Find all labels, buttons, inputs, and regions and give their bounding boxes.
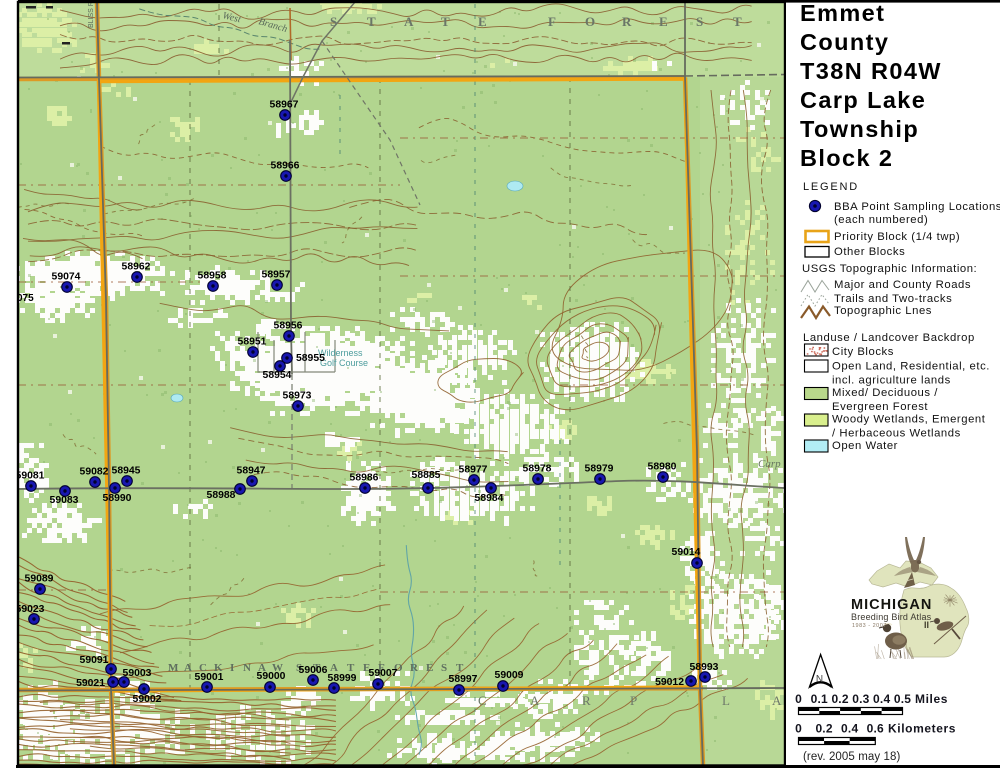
svg-text:BBA Point Sampling Locations: BBA Point Sampling Locations xyxy=(834,201,1000,213)
svg-text:N: N xyxy=(243,662,251,674)
svg-text:/ Herbaceous Wetlands: / Herbaceous Wetlands xyxy=(832,428,961,440)
svg-text:R: R xyxy=(622,14,632,29)
svg-text:A: A xyxy=(772,693,782,708)
svg-text:Open Water: Open Water xyxy=(832,440,898,452)
svg-text:59021: 59021 xyxy=(76,678,105,689)
svg-text:Township: Township xyxy=(800,116,919,142)
svg-text:A: A xyxy=(530,693,540,708)
svg-text:Carp Lake: Carp Lake xyxy=(800,87,926,113)
svg-text:T: T xyxy=(456,662,464,674)
svg-text:58984: 58984 xyxy=(475,493,504,504)
svg-text:58997: 58997 xyxy=(449,674,478,685)
svg-text:R: R xyxy=(410,662,419,674)
svg-text:59012: 59012 xyxy=(655,677,684,688)
svg-text:59003: 59003 xyxy=(123,668,152,679)
svg-text:0.1: 0.1 xyxy=(811,692,828,706)
svg-text:BLISS RD: BLISS RD xyxy=(88,0,95,28)
svg-text:58885: 58885 xyxy=(412,470,441,481)
svg-text:58951: 58951 xyxy=(238,337,267,348)
svg-text:N: N xyxy=(816,674,823,685)
svg-text:T: T xyxy=(441,14,450,29)
svg-text:E: E xyxy=(478,14,487,29)
svg-text:T: T xyxy=(733,14,742,29)
svg-text:P: P xyxy=(630,693,637,708)
svg-text:58977: 58977 xyxy=(459,465,488,476)
svg-text:E: E xyxy=(659,14,668,29)
svg-text:M: M xyxy=(168,662,179,674)
svg-text:II: II xyxy=(924,620,929,630)
svg-text:58956: 58956 xyxy=(274,321,303,332)
svg-text:59023: 59023 xyxy=(16,604,45,615)
svg-text:Emmet: Emmet xyxy=(800,0,885,26)
svg-text:0.2: 0.2 xyxy=(815,722,832,736)
svg-text:I: I xyxy=(230,662,234,674)
svg-text:MICHIGAN: MICHIGAN xyxy=(851,597,932,613)
svg-text:59007: 59007 xyxy=(369,668,398,679)
svg-text:Topographic Lnes: Topographic Lnes xyxy=(834,305,932,317)
svg-text:58947: 58947 xyxy=(237,466,266,477)
svg-text:USGS Topographic Information:: USGS Topographic Information: xyxy=(802,263,977,275)
svg-text:58945: 58945 xyxy=(112,466,141,477)
svg-text:0.2: 0.2 xyxy=(831,692,848,706)
svg-text:0.6: 0.6 xyxy=(867,722,884,736)
svg-text:59081: 59081 xyxy=(16,471,45,482)
svg-text:59074: 59074 xyxy=(52,272,81,283)
svg-text:L: L xyxy=(722,693,730,708)
svg-text:59089: 59089 xyxy=(25,574,54,585)
svg-text:58955: 58955 xyxy=(296,353,325,364)
svg-text:Priority Block (1/4 twp): Priority Block (1/4 twp) xyxy=(834,231,960,243)
svg-text:Open Land, Residential, etc.: Open Land, Residential, etc. xyxy=(832,361,990,373)
svg-text:58980: 58980 xyxy=(648,462,677,473)
svg-text:59006: 59006 xyxy=(299,665,328,676)
svg-text:City Blocks: City Blocks xyxy=(832,346,894,358)
svg-text:Block 2: Block 2 xyxy=(800,145,893,171)
svg-text:0.4: 0.4 xyxy=(841,722,858,736)
svg-text:58954: 58954 xyxy=(263,370,292,381)
svg-text:Golf Course: Golf Course xyxy=(320,358,368,368)
svg-text:58999: 58999 xyxy=(328,673,357,684)
svg-text:Trails and Two-tracks: Trails and Two-tracks xyxy=(834,293,952,305)
svg-text:58962: 58962 xyxy=(122,262,151,273)
svg-text:58986: 58986 xyxy=(350,473,379,484)
svg-text:Miles: Miles xyxy=(915,692,948,706)
svg-text:0: 0 xyxy=(795,722,802,736)
svg-text:0.3: 0.3 xyxy=(852,692,869,706)
svg-text:Kilometers: Kilometers xyxy=(888,722,956,736)
svg-text:Carp: Carp xyxy=(758,458,781,470)
svg-text:59000: 59000 xyxy=(257,671,286,682)
svg-text:T: T xyxy=(367,14,376,29)
svg-text:58990: 58990 xyxy=(103,493,132,504)
svg-text:58988: 58988 xyxy=(207,490,236,501)
svg-text:59014: 59014 xyxy=(672,547,701,558)
svg-text:Other Blocks: Other Blocks xyxy=(834,246,905,258)
svg-text:0.4: 0.4 xyxy=(873,692,890,706)
svg-text:58978: 58978 xyxy=(523,464,552,475)
svg-text:County: County xyxy=(800,29,889,55)
svg-text:O: O xyxy=(585,14,595,29)
svg-text:C: C xyxy=(478,693,487,708)
svg-text:Major and County Roads: Major and County Roads xyxy=(834,279,971,291)
svg-text:59083: 59083 xyxy=(50,495,79,506)
svg-text:58993: 58993 xyxy=(690,662,719,673)
svg-text:58979: 58979 xyxy=(585,464,614,475)
svg-text:58957: 58957 xyxy=(262,270,291,281)
svg-text:58967: 58967 xyxy=(270,100,299,111)
svg-text:A: A xyxy=(404,14,414,29)
svg-text:Landuse / Landcover Backdrop: Landuse / Landcover Backdrop xyxy=(803,332,975,344)
svg-text:E: E xyxy=(426,662,433,674)
svg-text:59091: 59091 xyxy=(80,655,109,666)
svg-text:Mixed/ Deciduous /: Mixed/ Deciduous / xyxy=(832,387,938,399)
svg-text:59002: 59002 xyxy=(133,694,162,705)
svg-text:58973: 58973 xyxy=(283,391,312,402)
svg-text:Woody Wetlands, Emergent: Woody Wetlands, Emergent xyxy=(832,414,986,426)
svg-text:S: S xyxy=(441,662,447,674)
svg-text:incl. agriculture lands: incl. agriculture lands xyxy=(832,375,951,387)
svg-text:R: R xyxy=(582,693,591,708)
svg-text:59001: 59001 xyxy=(195,672,224,683)
svg-text:(rev. 2005 may 18): (rev. 2005 may 18) xyxy=(803,751,901,763)
svg-text:S: S xyxy=(330,14,337,29)
svg-text:0: 0 xyxy=(795,692,802,706)
svg-text:(each numbered): (each numbered) xyxy=(834,214,928,226)
svg-text:59009: 59009 xyxy=(495,670,524,681)
svg-text:075: 075 xyxy=(17,293,34,304)
svg-text:58958: 58958 xyxy=(198,271,227,282)
svg-text:0.5: 0.5 xyxy=(894,692,911,706)
svg-text:A: A xyxy=(184,662,192,674)
svg-text:59082: 59082 xyxy=(80,467,109,478)
svg-text:F: F xyxy=(548,14,556,29)
svg-text:Breeding Bird Atlas: Breeding Bird Atlas xyxy=(851,612,932,622)
svg-text:Evergreen Forest: Evergreen Forest xyxy=(832,401,928,413)
svg-text:1983 - 2007: 1983 - 2007 xyxy=(852,623,887,629)
svg-text:LEGEND: LEGEND xyxy=(803,181,859,193)
svg-text:58966: 58966 xyxy=(271,161,300,172)
svg-text:T38N R04W: T38N R04W xyxy=(800,58,942,84)
svg-text:S: S xyxy=(696,14,703,29)
